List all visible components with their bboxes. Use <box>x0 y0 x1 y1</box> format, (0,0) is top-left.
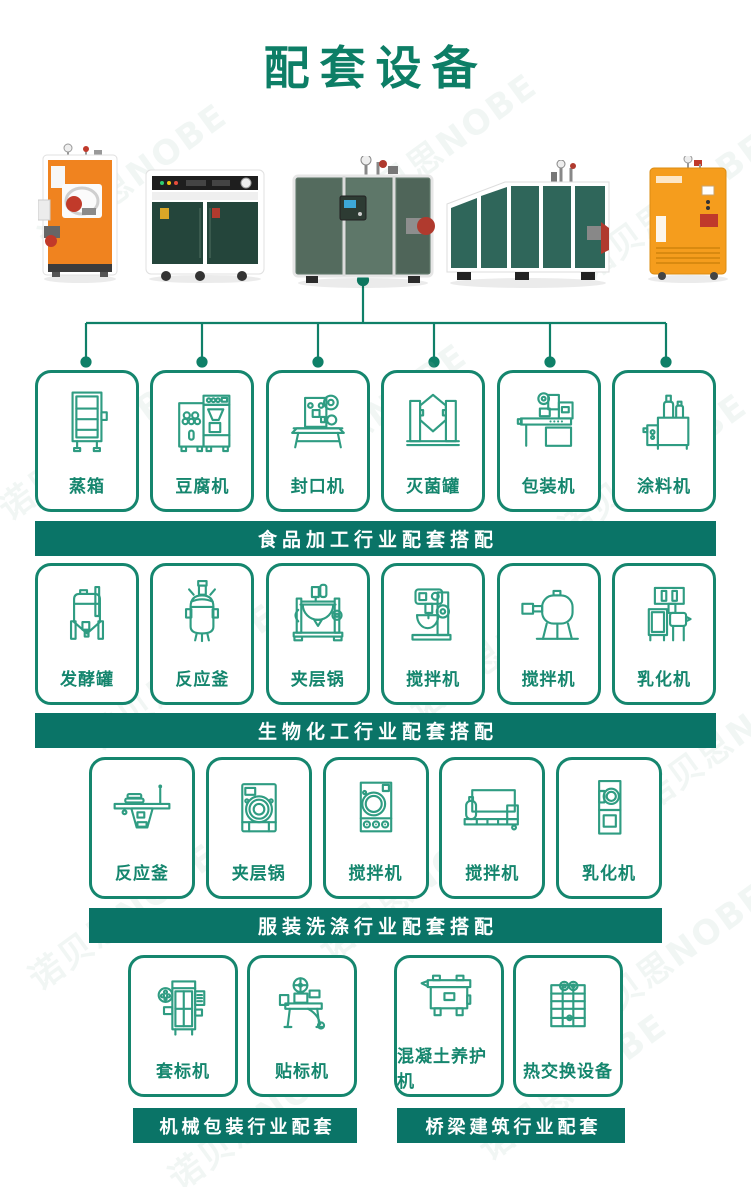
equipment-label: 混凝土养护机 <box>397 1042 501 1092</box>
equipment-label: 灭菌罐 <box>406 472 460 497</box>
laundry-industry-banner: 服装洗涤行业配套搭配 <box>89 908 662 943</box>
cabinet-steam-boiler-dark-green <box>142 164 268 284</box>
concrete-curing-machine-icon <box>397 958 501 1042</box>
equipment-card: 贴标机 <box>247 955 357 1097</box>
planetary-mixer-icon <box>384 566 482 665</box>
equipment-label: 套标机 <box>156 1057 210 1082</box>
equipment-card: 乳化机 <box>612 563 716 705</box>
equipment-label: 乳化机 <box>582 859 636 884</box>
food-industry-row: 蒸箱 豆腐机 封口机 灭菌罐 包装机 <box>35 370 716 512</box>
reaction-kettle-icon <box>153 566 251 665</box>
equipment-label: 反应釜 <box>175 665 229 690</box>
equipment-card: 混凝土养护机 <box>394 955 504 1097</box>
cabinet-steam-generator-orange <box>642 156 734 284</box>
packaging-industry-row: 套标机 贴标机 <box>128 955 357 1097</box>
equipment-label: 乳化机 <box>637 665 691 690</box>
equipment-card: 发酵罐 <box>35 563 139 705</box>
equipment-card: 乳化机 <box>556 757 662 899</box>
drum-mixer-icon <box>500 566 598 665</box>
equipment-card: 套标机 <box>128 955 238 1097</box>
equipment-label: 发酵罐 <box>60 665 114 690</box>
bridge-industry-banner: 桥梁建筑行业配套 <box>397 1108 625 1143</box>
laundry-industry-row: 反应釜 夹层锅 搅拌机 搅拌机 乳化机 <box>89 757 662 899</box>
equipment-card: 搅拌机 <box>381 563 485 705</box>
equipment-card: 灭菌罐 <box>381 370 485 512</box>
equipment-label: 封口机 <box>291 472 345 497</box>
equipment-label: 夹层锅 <box>291 665 345 690</box>
vertical-steam-generator-orange <box>38 142 122 284</box>
equipment-label: 搅拌机 <box>465 859 519 884</box>
equipment-card: 包装机 <box>497 370 601 512</box>
equipment-card: 反应釜 <box>89 757 195 899</box>
equipment-card: 搅拌机 <box>323 757 429 899</box>
equipment-label: 搅拌机 <box>349 859 403 884</box>
cube-steam-generator-green <box>288 156 438 288</box>
equipment-label: 涂料机 <box>637 472 691 497</box>
biochemical-industry-row: 发酵罐 反应釜 夹层锅 搅拌机 搅拌机 <box>35 563 716 705</box>
tofu-machine-icon <box>153 373 251 472</box>
equipment-label: 搅拌机 <box>406 665 460 690</box>
bridge-industry-row: 混凝土养护机 热交换设备 <box>394 955 623 1097</box>
packaging-industry-banner: 机械包装行业配套 <box>133 1108 357 1143</box>
equipment-card: 蒸箱 <box>35 370 139 512</box>
equipment-card: 夹层锅 <box>206 757 312 899</box>
equipment-card: 豆腐机 <box>150 370 254 512</box>
equipment-label: 反应釜 <box>115 859 169 884</box>
labeling-machine-icon <box>131 958 235 1057</box>
steam-cabinet-icon <box>38 373 136 472</box>
emulsifier-icon <box>615 566 713 665</box>
equipment-card: 封口机 <box>266 370 370 512</box>
equipment-label: 热交换设备 <box>523 1057 613 1082</box>
horizontal-steam-boiler-green <box>443 160 613 288</box>
biochemical-industry-banner: 生物化工行业配套搭配 <box>35 713 716 748</box>
washer-machine-icon <box>209 760 309 859</box>
ironing-table-icon <box>92 760 192 859</box>
fermenter-tank-icon <box>38 566 136 665</box>
vertical-dryer-icon <box>559 760 659 859</box>
sealing-machine-icon <box>269 373 367 472</box>
coating-machine-icon <box>615 373 713 472</box>
equipment-card: 夹层锅 <box>266 563 370 705</box>
sterilizer-tank-icon <box>384 373 482 472</box>
equipment-label: 蒸箱 <box>69 472 105 497</box>
jacketed-kettle-icon <box>269 566 367 665</box>
equipment-label: 搅拌机 <box>522 665 576 690</box>
equipment-label: 贴标机 <box>275 1057 329 1082</box>
page-title: 配套设备 <box>0 32 751 98</box>
equipment-card: 反应釜 <box>150 563 254 705</box>
flatwork-machine-icon <box>442 760 542 859</box>
catalog-page: 诺贝思NOBE 诺贝思NOBE 诺贝思NOBE 诺贝思NOBE 诺贝思NOBE … <box>0 0 751 1187</box>
packing-machine-icon <box>500 373 598 472</box>
sticker-labeler-icon <box>250 958 354 1057</box>
heat-exchanger-icon <box>516 958 620 1057</box>
equipment-label: 夹层锅 <box>232 859 286 884</box>
equipment-label: 包装机 <box>522 472 576 497</box>
equipment-card: 搅拌机 <box>439 757 545 899</box>
equipment-card: 热交换设备 <box>513 955 623 1097</box>
equipment-card: 涂料机 <box>612 370 716 512</box>
dryer-machine-icon <box>326 760 426 859</box>
equipment-card: 搅拌机 <box>497 563 601 705</box>
equipment-label: 豆腐机 <box>175 472 229 497</box>
food-industry-banner: 食品加工行业配套搭配 <box>35 521 716 556</box>
